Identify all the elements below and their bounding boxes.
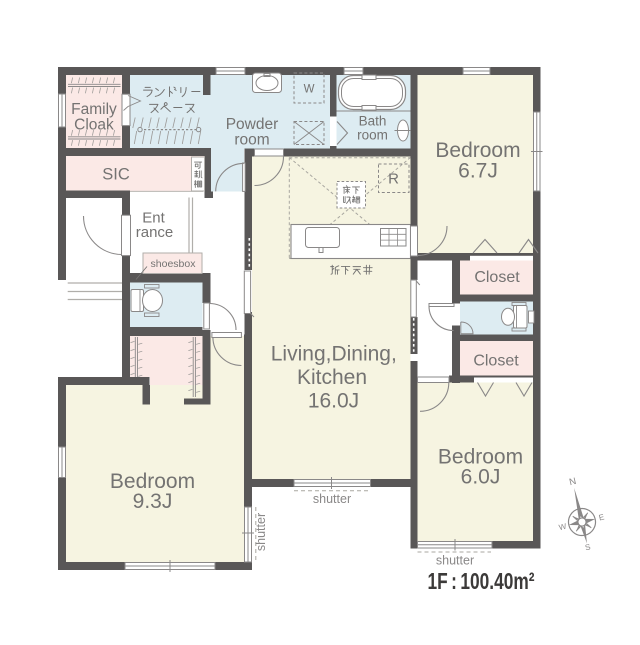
svg-text:shutter: shutter <box>313 492 351 506</box>
svg-text:Kitchen: Kitchen <box>297 366 367 389</box>
svg-text:room: room <box>357 128 388 143</box>
svg-text:9.3J: 9.3J <box>133 490 173 513</box>
svg-text:SIC: SIC <box>102 166 130 184</box>
svg-text:shutter: shutter <box>254 513 268 551</box>
svg-text:6.0J: 6.0J <box>461 466 501 489</box>
svg-text:R: R <box>388 171 399 188</box>
svg-text:Bath: Bath <box>359 114 387 129</box>
svg-text:1F : 100.40m²: 1F : 100.40m² <box>428 568 535 594</box>
svg-text:6.7J: 6.7J <box>458 160 498 183</box>
svg-text:W: W <box>304 84 315 96</box>
svg-text:Closet: Closet <box>473 353 519 370</box>
svg-text:rance: rance <box>136 224 174 241</box>
svg-text:Powder: Powder <box>226 116 279 133</box>
svg-text:shutter: shutter <box>436 554 474 568</box>
svg-text:Cloak: Cloak <box>74 117 114 134</box>
svg-text:room: room <box>234 132 269 149</box>
svg-text:shoesbox: shoesbox <box>151 258 197 270</box>
svg-text:Closet: Closet <box>474 269 520 286</box>
svg-text:Living,Dining,: Living,Dining, <box>271 343 397 366</box>
svg-text:Family: Family <box>71 101 117 118</box>
svg-text:16.0J: 16.0J <box>308 390 359 413</box>
